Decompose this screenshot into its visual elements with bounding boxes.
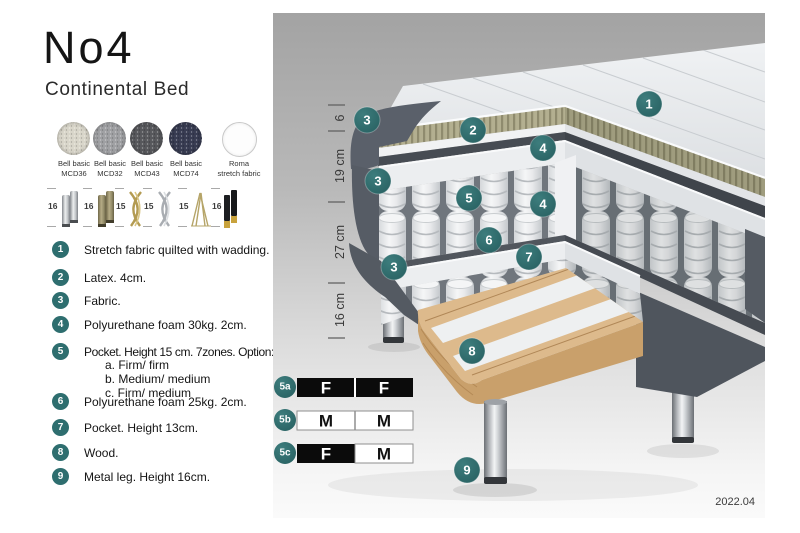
- firmness-id: 5b: [279, 415, 291, 426]
- silver-twist-leg-icon: [155, 188, 175, 235]
- list-item-text: Polyurethane foam 25kg. 2cm.: [84, 393, 247, 409]
- list-item: 6 Polyurethane foam 25kg. 2cm.: [52, 393, 247, 410]
- dimension-label: 6: [333, 114, 347, 121]
- svg-text:1: 1: [645, 97, 652, 112]
- black-gold-leg-icon: [222, 188, 242, 235]
- chrome-leg-icon: [60, 188, 82, 235]
- svg-text:8: 8: [468, 344, 475, 359]
- callout-3c: 3: [381, 254, 407, 280]
- svg-text:3: 3: [390, 260, 397, 275]
- list-item: 7 Pocket. Height 13cm.: [52, 419, 198, 436]
- firmness-cell: M: [377, 445, 391, 464]
- bed-cutaway-panel: 6 19 cm 27 cm 16 cm: [273, 13, 765, 518]
- fabric-swatch: [57, 122, 90, 155]
- firmness-cell: F: [321, 379, 331, 398]
- list-number-badge: 2: [52, 269, 69, 286]
- svg-text:2: 2: [469, 123, 476, 138]
- product-title: No4: [43, 22, 135, 74]
- list-item-text: Stretch fabric quilted with wadding.: [84, 241, 269, 257]
- list-item: 3 Fabric.: [52, 292, 121, 309]
- callout-3b: 3: [365, 168, 391, 194]
- hairpin-leg-icon: [189, 188, 213, 235]
- callout-9: 9: [454, 457, 480, 483]
- fabric-swatch: [130, 122, 163, 155]
- pocket-option: a. Firm/ firm: [105, 358, 169, 372]
- product-subtitle: Continental Bed: [45, 79, 189, 101]
- leg-height-label: 16: [84, 201, 93, 211]
- spec-panel: No4 Continental Bed Bell basicMCD36 Bell…: [0, 0, 273, 533]
- callout-4b: 4: [530, 191, 556, 217]
- list-item: 1 Stretch fabric quilted with wadding.: [52, 241, 269, 258]
- callout-5: 5: [456, 185, 482, 211]
- dimension-label: 19 cm: [333, 149, 347, 183]
- svg-text:6: 6: [485, 233, 492, 248]
- list-item-text: Wood.: [84, 444, 118, 460]
- callout-2: 2: [460, 117, 486, 143]
- list-item: 8 Wood.: [52, 444, 118, 461]
- list-number-badge: 1: [52, 241, 69, 258]
- dimension-label: 16 cm: [333, 293, 347, 327]
- leg-height-label: 16: [48, 201, 57, 211]
- pocket-option: b. Medium/ medium: [105, 372, 210, 386]
- callout-3: 3: [354, 107, 380, 133]
- list-item: 2 Latex. 4cm.: [52, 269, 146, 286]
- svg-text:5: 5: [465, 191, 472, 206]
- list-number-badge: 3: [52, 292, 69, 309]
- list-item-text: Polyurethane foam 30kg. 2cm.: [84, 316, 247, 332]
- gold-twist-leg-icon: [126, 188, 146, 235]
- firmness-legend: 5a F F 5b M M 5c F M: [274, 376, 413, 464]
- list-number-badge: 9: [52, 468, 69, 485]
- product-sheet: No4 Continental Bed Bell basicMCD36 Bell…: [0, 0, 800, 533]
- list-item-text: Pocket. Height 13cm.: [84, 419, 198, 435]
- brass-leg-icon: [96, 188, 118, 235]
- svg-text:7: 7: [525, 250, 532, 265]
- version-label: 2022.04: [715, 496, 755, 508]
- list-number-badge: 8: [52, 444, 69, 461]
- list-item: 4 Polyurethane foam 30kg. 2cm.: [52, 316, 247, 333]
- list-item: 9 Metal leg. Height 16cm.: [52, 468, 210, 485]
- callout-7: 7: [516, 244, 542, 270]
- firmness-cell: M: [319, 412, 333, 431]
- list-number-badge: 7: [52, 419, 69, 436]
- svg-text:4: 4: [539, 141, 547, 156]
- svg-text:3: 3: [363, 113, 370, 128]
- callout-1: 1: [636, 91, 662, 117]
- svg-text:3: 3: [374, 174, 381, 189]
- firmness-id: 5c: [279, 448, 291, 459]
- callout-6: 6: [476, 227, 502, 253]
- firmness-cell: M: [377, 412, 391, 431]
- leg-height-label: 15: [179, 201, 188, 211]
- firmness-id: 5a: [279, 382, 291, 393]
- list-number-badge: 6: [52, 393, 69, 410]
- list-item-text: Pocket. Height 15 cm. 7zones. Option:: [84, 343, 274, 359]
- firmness-cell: F: [321, 445, 331, 464]
- list-item-text: Fabric.: [84, 292, 121, 308]
- list-number-badge: 4: [52, 316, 69, 333]
- list-number-badge: 5: [52, 343, 69, 360]
- metal-leg-front: [484, 399, 507, 484]
- dimension-label: 27 cm: [333, 225, 347, 259]
- firmness-cell: F: [379, 379, 389, 398]
- fabric-swatch: [169, 122, 202, 155]
- fabric-swatch: [93, 122, 126, 155]
- callout-8: 8: [459, 338, 485, 364]
- bed-cutaway-illustration: 6 19 cm 27 cm 16 cm: [273, 13, 765, 518]
- swatch-label: Romastretch fabric: [207, 159, 271, 179]
- fabric-swatch: [222, 122, 257, 157]
- svg-text:9: 9: [463, 463, 470, 478]
- list-item-text: Latex. 4cm.: [84, 269, 146, 285]
- leg-height-label: 16: [212, 201, 221, 211]
- list-item-text: Metal leg. Height 16cm.: [84, 468, 210, 484]
- svg-text:4: 4: [539, 197, 547, 212]
- callout-4: 4: [530, 135, 556, 161]
